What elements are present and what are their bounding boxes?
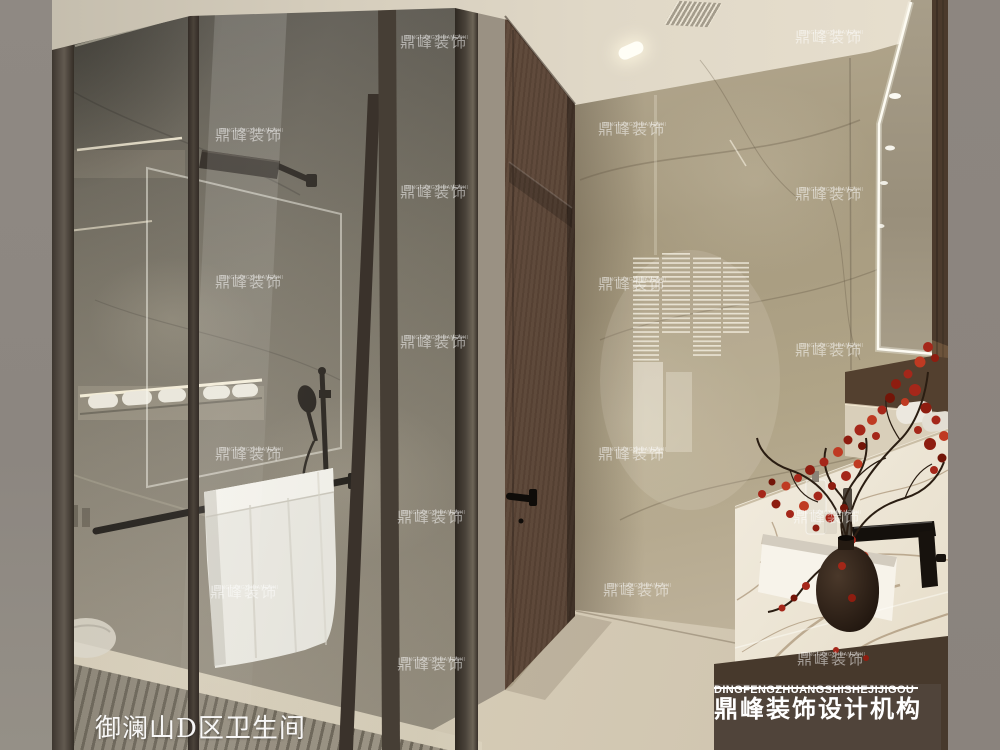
project-caption: 御澜山D区卫生间 [95, 708, 306, 745]
watermark-layer: 鼎峰装饰DINGFENGZHUANGSHI鼎峰装饰DINGFENGZHUANGS… [0, 0, 1000, 750]
right-wall-edge [948, 0, 1000, 750]
bathroom-render: 鼎峰装饰DINGFENGZHUANGSHI鼎峰装饰DINGFENGZHUANGS… [0, 0, 1000, 750]
brand-plate: 鼎峰装饰设计机构 DINGFENGZHUANGSHISHEJIJIGOU [714, 684, 941, 750]
brand-plate-title-en: DINGFENGZHUANGSHISHEJIJIGOU [714, 684, 914, 696]
left-wall-edge [0, 0, 52, 750]
